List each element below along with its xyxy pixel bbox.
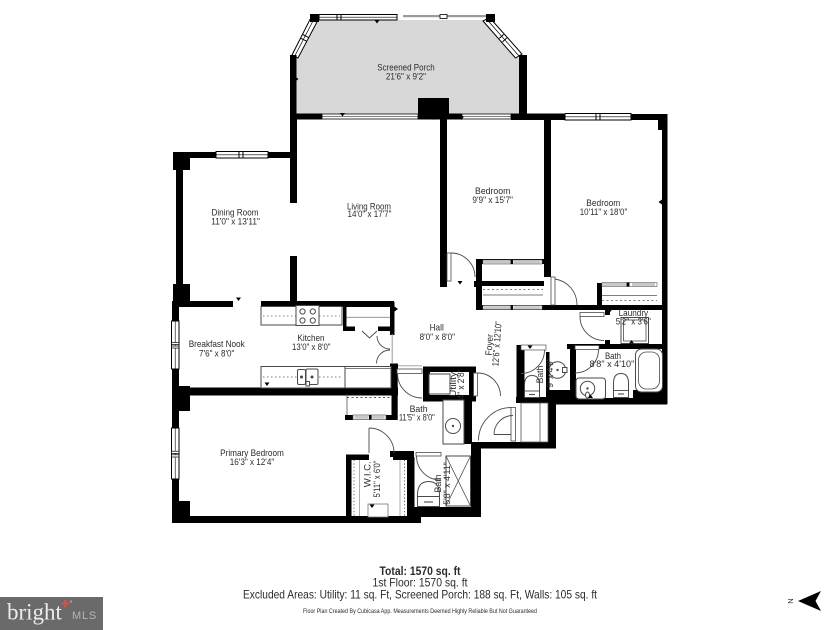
svg-text:4" x 2'8": 4" x 2'8" xyxy=(456,370,466,400)
svg-text:9' x 4'9": 9' x 4'9" xyxy=(545,358,555,388)
svg-text:Hall: Hall xyxy=(430,323,444,333)
svg-text:11'0" x 13'11": 11'0" x 13'11" xyxy=(211,217,260,227)
svg-text:W.I.C.: W.I.C. xyxy=(362,461,372,487)
svg-text:9'9" x 15'7": 9'9" x 15'7" xyxy=(472,195,513,205)
svg-text:5'2" x 3'6": 5'2" x 3'6" xyxy=(616,317,651,327)
svg-text:N: N xyxy=(786,598,795,603)
svg-text:Floor Plan Created By Cubicasa: Floor Plan Created By Cubicasa App. Meas… xyxy=(303,609,537,615)
svg-text:14'0" x 17'7": 14'0" x 17'7" xyxy=(348,209,392,219)
svg-text:11'5" x 8'0": 11'5" x 8'0" xyxy=(399,412,435,422)
svg-text:7'6" x 8'0": 7'6" x 8'0" xyxy=(199,348,234,358)
svg-text:21'6" x 9'2": 21'6" x 9'2" xyxy=(386,72,426,82)
svg-text:Bath: Bath xyxy=(535,366,545,384)
svg-text:8'0" x 8'0": 8'0" x 8'0" xyxy=(420,332,455,342)
svg-text:MLS: MLS xyxy=(72,610,97,622)
svg-text:5'11" x 6'0": 5'11" x 6'0" xyxy=(372,461,382,498)
svg-text:5'8" x 4'11": 5'8" x 4'11" xyxy=(442,462,452,505)
svg-text:Excluded Areas: Utility: 11 sq: Excluded Areas: Utility: 11 sq. Ft, Scre… xyxy=(243,588,598,602)
svg-text:13'0" x 8'0": 13'0" x 8'0" xyxy=(292,342,331,352)
svg-text:bright: bright xyxy=(7,600,63,625)
svg-text:16'3" x 12'4": 16'3" x 12'4" xyxy=(230,457,275,467)
svg-text:10'11" x 18'0": 10'11" x 18'0" xyxy=(580,207,628,217)
svg-text:8'8" x 4'10": 8'8" x 4'10" xyxy=(590,359,635,369)
